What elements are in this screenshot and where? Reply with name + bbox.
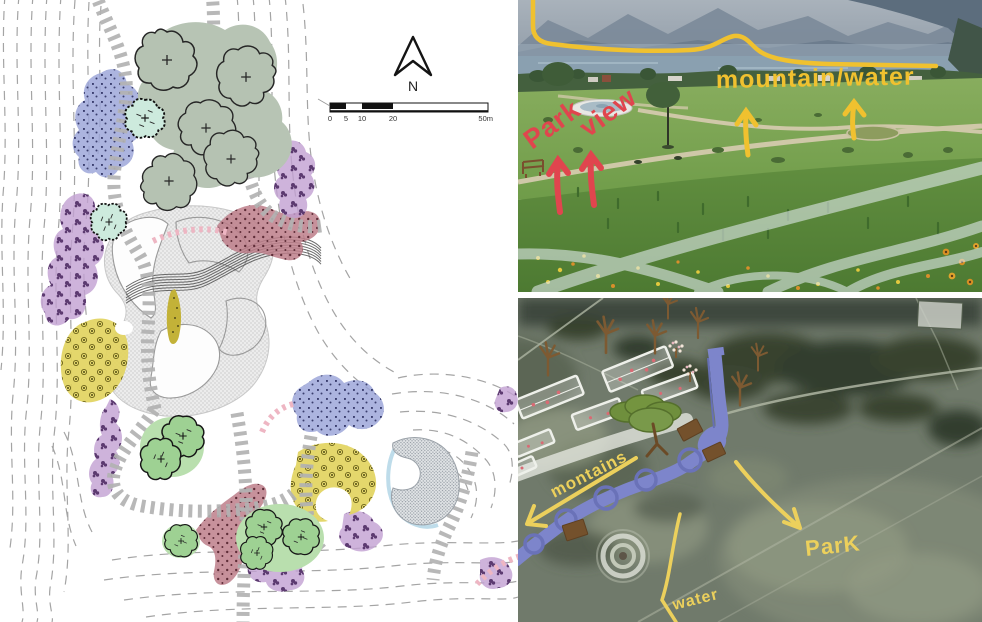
fountain-rings [597,530,649,582]
scale-tick: 0 [328,114,332,123]
park-view-photo: mountain/water Park view [518,0,982,292]
aerial-photo-scene: montains ParK water [518,298,982,622]
purple-bed [89,399,122,497]
north-label: N [408,78,418,94]
scale-tick: 5 [344,114,348,123]
building [917,301,962,329]
scale-tick: 10 [358,114,366,123]
scale-tick: 50m [478,114,493,123]
scale-tick: 20 [389,114,397,123]
blue-bed [292,375,384,436]
site-plan-drawing: N 0 5 10 20 50m [0,0,518,622]
purple-bed [495,386,518,412]
purple-bed [339,511,383,551]
aerial-photo: montains ParK water [518,298,982,622]
park-photo-scene: mountain/water Park view [518,0,982,292]
site-plan-panel: N 0 5 10 20 50m [0,0,518,622]
scale-bar: 0 5 10 20 50m [318,99,493,123]
north-arrow: N [395,37,431,94]
water-feature [388,438,459,527]
landscape-design-board: N 0 5 10 20 50m [0,0,982,622]
mountain-water-label: mountain/water [716,63,915,94]
